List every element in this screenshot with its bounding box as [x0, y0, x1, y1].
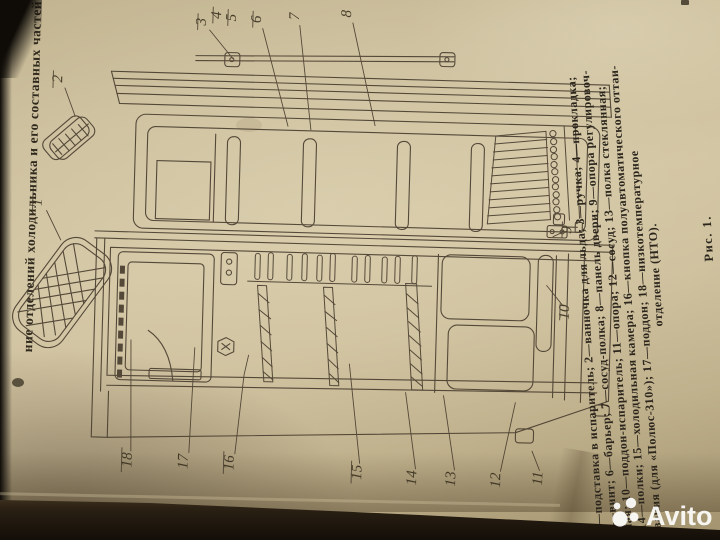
book-page-photo: ние отделений холодильника и его составн… [0, 0, 720, 540]
photo-top-left-corner [0, 0, 42, 78]
wire-shelves-hatched [255, 279, 426, 390]
leader-12 [500, 402, 515, 471]
avito-circles-logo [612, 498, 638, 527]
paper-dark-spot [12, 378, 24, 387]
leader-16 [235, 355, 249, 454]
part-ice-tray [40, 110, 98, 165]
part-label-13: 13 [443, 471, 459, 486]
freezer-compartment [115, 252, 215, 383]
leader-3-4-5 [209, 30, 234, 59]
leader-17 [189, 348, 195, 453]
door-handle [196, 46, 455, 73]
leader-11 [531, 451, 540, 470]
part-label-10: 10 [557, 304, 573, 320]
part-label-2: 2 [50, 74, 66, 82]
avito-watermark: Avito [604, 492, 720, 536]
thermostat-knob [218, 252, 238, 355]
fridge-door [107, 43, 613, 241]
part-label-6: 6 [249, 15, 265, 23]
page-number-fragment [681, 0, 689, 5]
leader-14 [403, 393, 417, 469]
part-label-4: 4 [209, 11, 225, 19]
evaporator-tray [536, 255, 554, 351]
part-label-1: 1 [30, 198, 46, 206]
door-shelf-divider [225, 137, 240, 225]
part-label-5: 5 [224, 13, 240, 21]
shelf-supports [248, 251, 433, 286]
leader-18 [128, 340, 134, 451]
door-shelf-divider [395, 141, 410, 229]
part-labels: 1 2 3 4 5 6 7 8 9 10 11 12 13 14 15 16 1… [22, 1, 581, 490]
part-label-8: 8 [339, 9, 355, 17]
figure-number-label: Рис. 1. [700, 215, 717, 262]
part-label-7: 7 [287, 11, 303, 20]
fridge-cabinet [89, 201, 614, 451]
front-foot [515, 429, 533, 443]
avito-watermark-text: Avito [646, 501, 713, 531]
part-label-17: 17 [175, 452, 191, 469]
vegetable-vessels [435, 254, 537, 395]
door-shelf-divider [469, 143, 484, 231]
door-shelf-divider [301, 139, 316, 227]
label-underlines [25, 2, 568, 489]
part-label-3: 3 [194, 18, 210, 27]
leader-1 [46, 211, 62, 240]
part-label-12: 12 [488, 472, 504, 488]
leader-7 [297, 26, 314, 130]
part-label-11: 11 [530, 471, 546, 485]
leader-6 [260, 28, 291, 126]
photo-left-edge [0, 0, 12, 540]
leader-2 [64, 88, 76, 116]
part-label-14: 14 [404, 470, 420, 486]
